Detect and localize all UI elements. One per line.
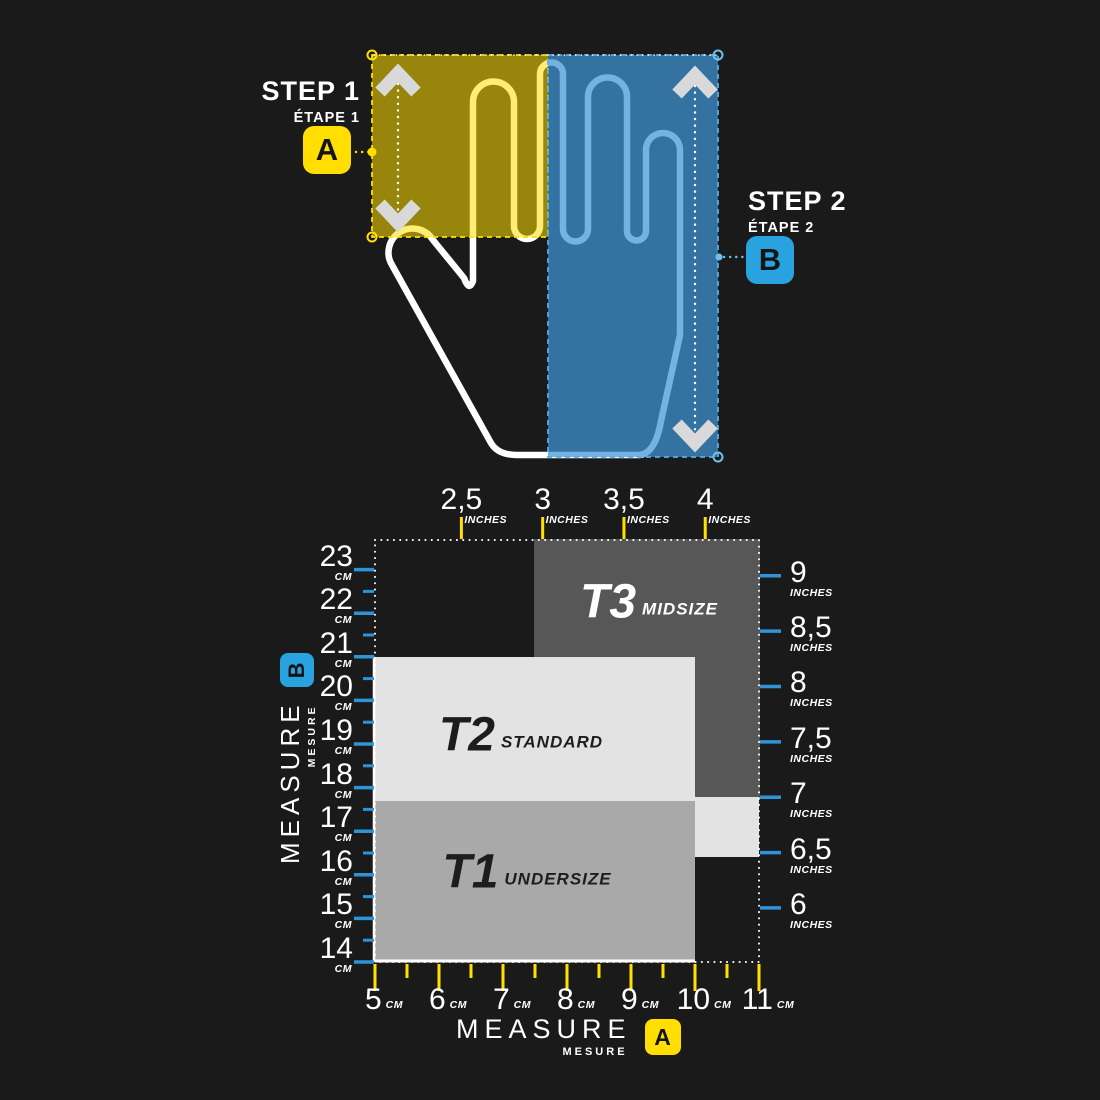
glove-sizing-infographic: STEP 1 ÉTAPE 1 A STEP 2 ÉTAPE 2 B T3MIDS… xyxy=(0,0,1100,1100)
measure-a-text: MEASURE MESURE xyxy=(456,1016,632,1058)
measure-a-label: MEASURE xyxy=(456,1016,632,1043)
measure-b-title-block: MEASURE MESURE B xyxy=(267,652,327,864)
size-id: T1 xyxy=(442,853,498,894)
measure-b-text: MEASURE MESURE xyxy=(277,700,318,864)
size-label-t3: T3MIDSIZE xyxy=(580,582,718,623)
size-id: T3 xyxy=(580,582,636,623)
size-chart-regions: T3MIDSIZET2STANDARDT1UNDERSIZE xyxy=(0,0,1100,1100)
size-name: UNDERSIZE xyxy=(504,870,611,894)
size-region-t2: T2STANDARD xyxy=(375,657,695,801)
size-region-t2 xyxy=(695,797,759,857)
size-label-t1: T1UNDERSIZE xyxy=(442,853,611,894)
size-name: MIDSIZE xyxy=(642,599,718,623)
size-region-t1: T1UNDERSIZE xyxy=(375,801,695,962)
measure-a-title-block: MEASURE MESURE A xyxy=(456,1016,681,1058)
size-label-t2: T2STANDARD xyxy=(439,715,603,756)
badge-b-small: B xyxy=(280,653,314,687)
measure-a-sublabel: MESURE xyxy=(456,1046,632,1058)
measure-b-sublabel: MESURE xyxy=(306,700,318,864)
badge-a-small: A xyxy=(645,1019,681,1055)
size-name: STANDARD xyxy=(501,732,603,756)
measure-b-label: MEASURE xyxy=(277,700,303,864)
size-id: T2 xyxy=(439,715,495,756)
